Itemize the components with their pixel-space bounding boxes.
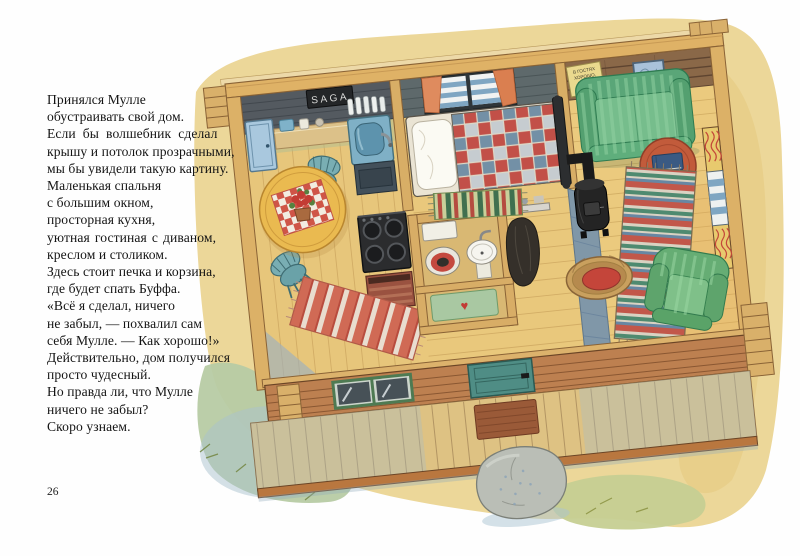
jar	[299, 119, 309, 130]
armchair	[642, 244, 733, 333]
canister	[279, 119, 294, 131]
story-line: Принялся Мулле	[47, 91, 271, 108]
story-line: мы бы увидели такую картину.	[47, 160, 271, 177]
bowl	[315, 118, 324, 127]
story-line: ничего не забыл?	[47, 401, 271, 418]
story-line: Но правда ли, что Мулле	[47, 383, 271, 400]
story-line: «Всё я сделал, ничего	[47, 297, 271, 314]
doormat	[474, 399, 539, 439]
story-line: Действительно, дом получился	[47, 349, 271, 366]
story-line: не забыл, — похвалил сам	[47, 315, 271, 332]
stove-door	[583, 202, 600, 217]
story-line: где будет спать Буффа.	[47, 280, 271, 297]
bathroom-box: ♥	[408, 205, 518, 335]
story-line: себя Мулле. — Как хорошо!»	[47, 332, 271, 349]
story-line: с большим окном,	[47, 194, 271, 211]
story-line: крышу и потолок прозрачными,	[47, 143, 271, 160]
story-line: уютная гостиная с диваном,	[47, 229, 271, 246]
grass-right	[551, 475, 705, 530]
story-line: Скоро узнаем.	[47, 418, 271, 435]
kitchen-stove	[358, 212, 412, 273]
door-handle	[521, 373, 529, 379]
quilt	[451, 104, 561, 192]
story-line: Если бы волшебник сделал	[47, 125, 271, 142]
bedroom-rug	[427, 189, 528, 220]
page-number: 26	[47, 486, 59, 498]
story-line: обустраивать свой дом.	[47, 108, 271, 125]
story-line: Маленькая спальня	[47, 177, 271, 194]
story-line: Здесь стоит печка и корзина,	[47, 263, 271, 280]
book-page: SAGA	[0, 0, 800, 556]
story-line: просто чудесный.	[47, 366, 271, 383]
front-door	[468, 358, 535, 398]
story-line: просторная кухня,	[47, 211, 271, 228]
pillow	[411, 119, 458, 191]
story-line: креслом и столиком.	[47, 246, 271, 263]
story-text: Принялся Мулле обустраивать свой дом. Ес…	[47, 91, 271, 435]
